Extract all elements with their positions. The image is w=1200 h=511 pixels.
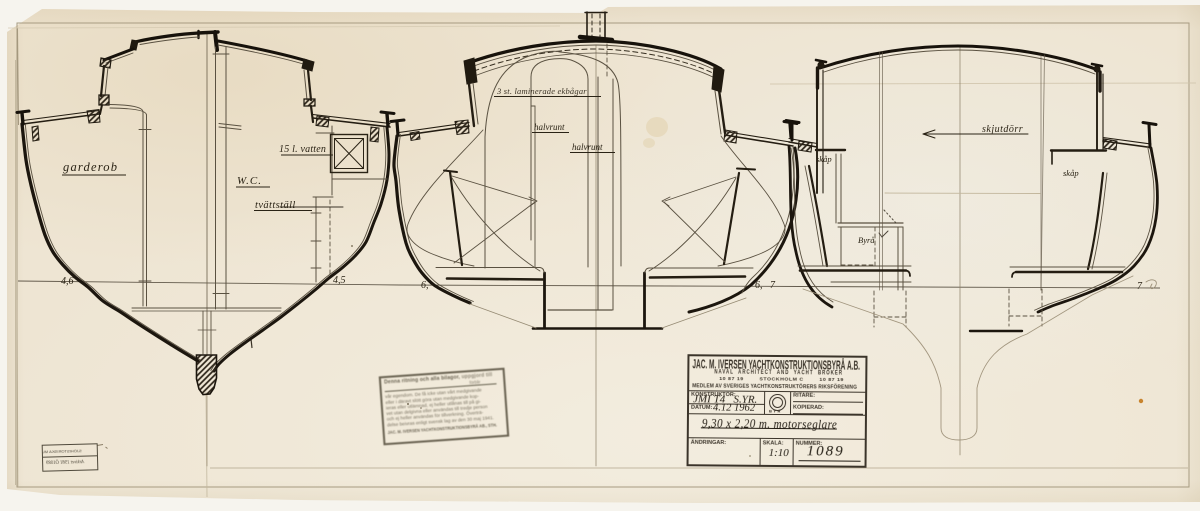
- svg-text:skåp: skåp: [816, 154, 832, 164]
- svg-text:4,5: 4,5: [333, 275, 346, 286]
- svg-text:halvrunt: halvrunt: [572, 142, 603, 152]
- svg-text:tvättställ: tvättställ: [255, 200, 296, 211]
- svg-text:skjutdörr: skjutdörr: [982, 124, 1023, 135]
- svg-text:skåp: skåp: [1063, 168, 1079, 178]
- svg-text:halvrunt: halvrunt: [534, 122, 565, 132]
- svg-text:6,: 6,: [421, 280, 429, 291]
- svg-text:6,: 6,: [755, 280, 763, 291]
- svg-text:garderob: garderob: [63, 160, 118, 174]
- svg-text:Byrå: Byrå: [858, 235, 875, 245]
- svg-text:W.C.: W.C.: [237, 175, 262, 187]
- svg-text:15 l. vatten: 15 l. vatten: [279, 144, 326, 155]
- svg-text:4,6: 4,6: [61, 276, 74, 287]
- svg-text:3 st. laminerade ekbågar: 3 st. laminerade ekbågar: [496, 86, 587, 96]
- svg-text:7: 7: [770, 280, 776, 291]
- svg-text:7: 7: [1137, 281, 1143, 292]
